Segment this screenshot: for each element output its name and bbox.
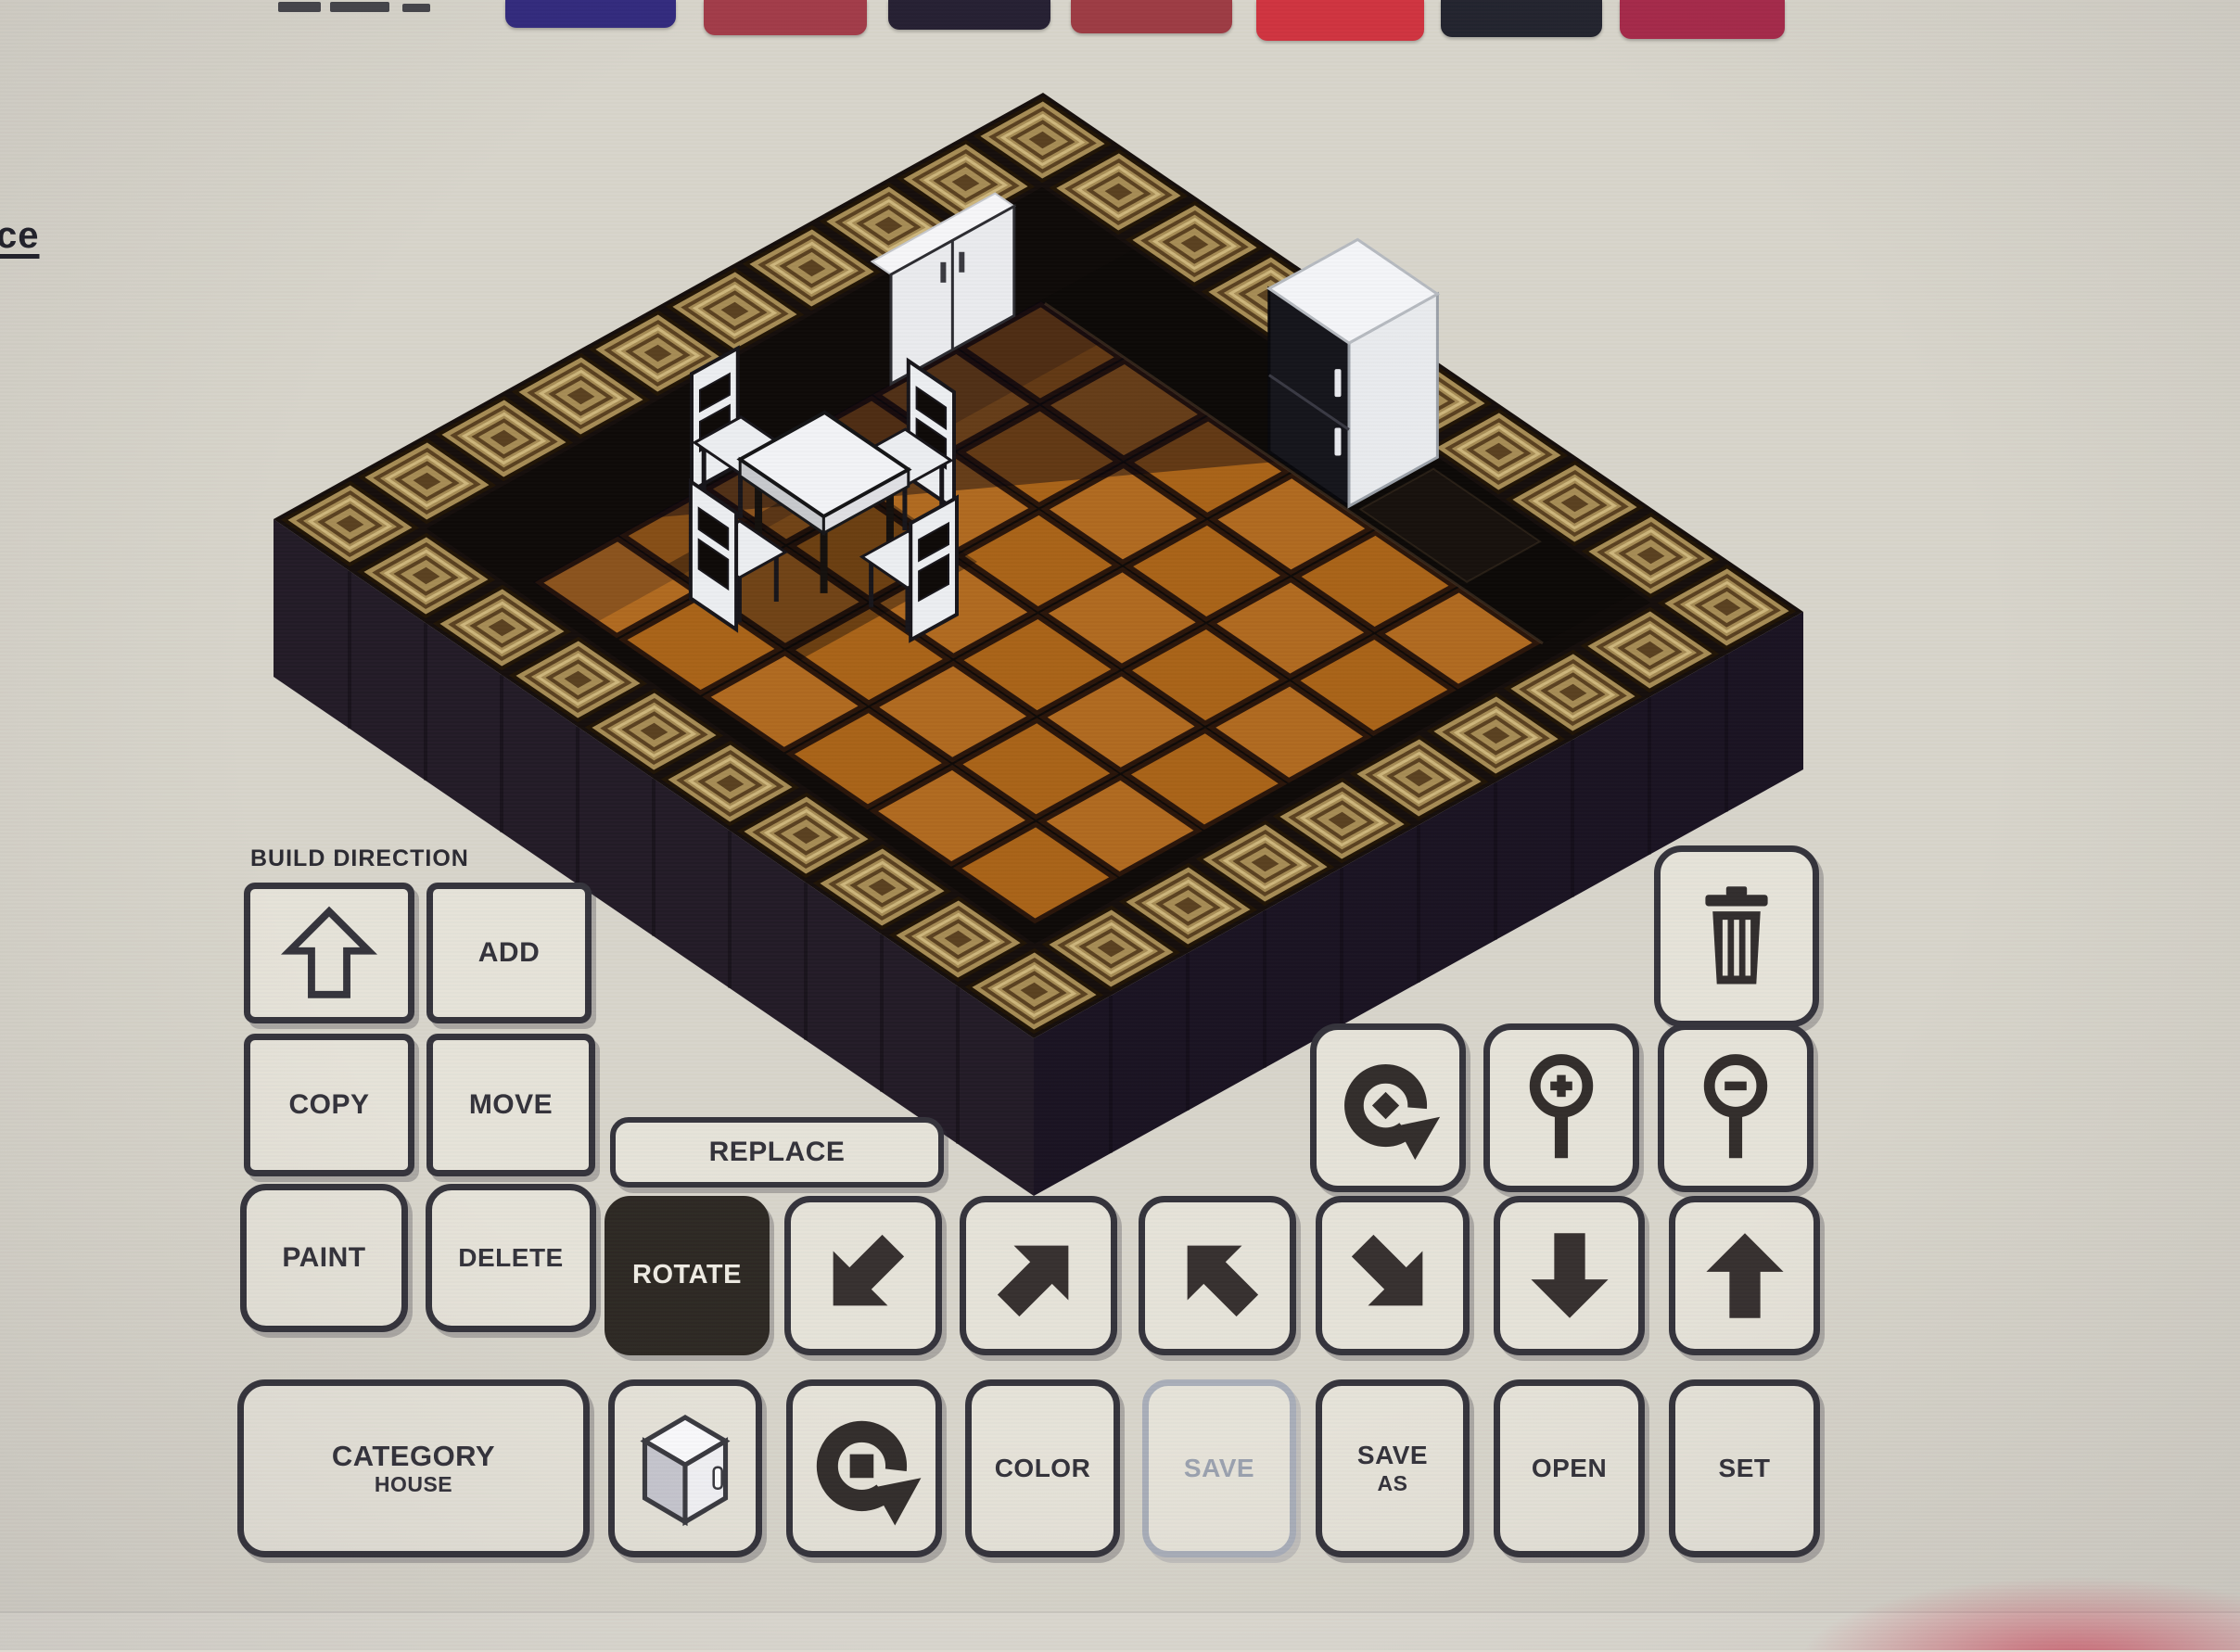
button-label: MOVE bbox=[469, 1090, 553, 1120]
color-tab[interactable] bbox=[1256, 0, 1424, 41]
build-direction-label: BUILD DIRECTION bbox=[250, 845, 469, 872]
category-button[interactable]: CATEGORY HOUSE bbox=[237, 1379, 590, 1557]
trash-icon bbox=[1685, 880, 1788, 993]
save-button[interactable]: SAVE bbox=[1142, 1379, 1296, 1557]
button-label: COPY bbox=[288, 1090, 369, 1120]
button-label: OPEN bbox=[1532, 1455, 1607, 1482]
add-button[interactable]: ADD bbox=[426, 883, 592, 1023]
rotate-cw-square-icon bbox=[805, 1409, 923, 1528]
button-label: CATEGORY bbox=[332, 1441, 495, 1471]
screen-bezel bbox=[0, 1611, 2240, 1652]
button-label: COLOR bbox=[995, 1455, 1091, 1482]
zoom-out-button[interactable] bbox=[1658, 1023, 1814, 1192]
color-tab[interactable] bbox=[888, 0, 1050, 30]
top-tab-strip bbox=[0, 0, 2240, 56]
button-label: SAVE bbox=[1184, 1455, 1254, 1482]
button-label: PAINT bbox=[282, 1243, 365, 1273]
rotate-mode-button[interactable]: ROTATE bbox=[605, 1196, 770, 1355]
arrow-nw-icon bbox=[1169, 1227, 1266, 1324]
move-button[interactable]: MOVE bbox=[426, 1034, 595, 1176]
button-label: SET bbox=[1719, 1455, 1771, 1482]
move-up-button[interactable] bbox=[1669, 1196, 1820, 1355]
color-tab[interactable] bbox=[1620, 0, 1785, 39]
paint-button[interactable]: PAINT bbox=[240, 1184, 408, 1332]
replace-button[interactable]: REPLACE bbox=[610, 1117, 944, 1188]
save-as-button[interactable]: SAVE AS bbox=[1316, 1379, 1470, 1557]
arrow-se-icon bbox=[1344, 1227, 1441, 1324]
button-label: SAVE bbox=[1357, 1442, 1428, 1469]
iso-cube-icon bbox=[626, 1405, 745, 1531]
ce-link[interactable]: ce bbox=[0, 215, 40, 257]
color-tab[interactable] bbox=[1441, 0, 1602, 37]
move-ne-button[interactable] bbox=[960, 1196, 1117, 1355]
delete-button[interactable]: DELETE bbox=[426, 1184, 596, 1332]
button-label: ADD bbox=[478, 938, 541, 968]
arrow-ne-icon bbox=[990, 1227, 1087, 1324]
move-sw-button[interactable] bbox=[784, 1196, 942, 1355]
move-nw-button[interactable] bbox=[1139, 1196, 1296, 1355]
category-value: HOUSE bbox=[375, 1473, 452, 1496]
color-button[interactable]: COLOR bbox=[965, 1379, 1120, 1557]
zoom-in-button[interactable] bbox=[1483, 1023, 1639, 1192]
magnifier-minus-icon bbox=[1681, 1048, 1790, 1167]
move-se-button[interactable] bbox=[1316, 1196, 1470, 1355]
rotate-view-button[interactable] bbox=[1310, 1023, 1466, 1192]
open-button[interactable]: OPEN bbox=[1494, 1379, 1645, 1557]
rotate-object-button[interactable] bbox=[786, 1379, 942, 1557]
color-tab[interactable] bbox=[704, 0, 867, 35]
screen-photo: ce BUILD DIRECTION ADD COPY MOVE PAINT D… bbox=[0, 0, 2240, 1650]
rotate-cw-icon bbox=[1331, 1051, 1445, 1164]
color-tab[interactable] bbox=[1071, 0, 1232, 33]
block-preview-button[interactable] bbox=[608, 1379, 762, 1557]
arrow-up-icon bbox=[1697, 1227, 1793, 1324]
set-button[interactable]: SET bbox=[1669, 1379, 1820, 1557]
copy-button[interactable]: COPY bbox=[244, 1034, 414, 1176]
button-label: REPLACE bbox=[709, 1137, 846, 1167]
button-label: DELETE bbox=[458, 1244, 563, 1272]
arrow-up-outline-icon bbox=[274, 901, 384, 1005]
arrow-sw-icon bbox=[815, 1227, 911, 1324]
arrow-down-icon bbox=[1521, 1227, 1618, 1324]
magnifier-plus-icon bbox=[1507, 1048, 1616, 1167]
button-label: AS bbox=[1378, 1472, 1408, 1495]
color-tab[interactable] bbox=[505, 0, 676, 28]
move-down-button[interactable] bbox=[1494, 1196, 1645, 1355]
button-label: ROTATE bbox=[632, 1261, 742, 1290]
build-direction-button[interactable] bbox=[244, 883, 414, 1023]
trash-button[interactable] bbox=[1654, 845, 1819, 1027]
